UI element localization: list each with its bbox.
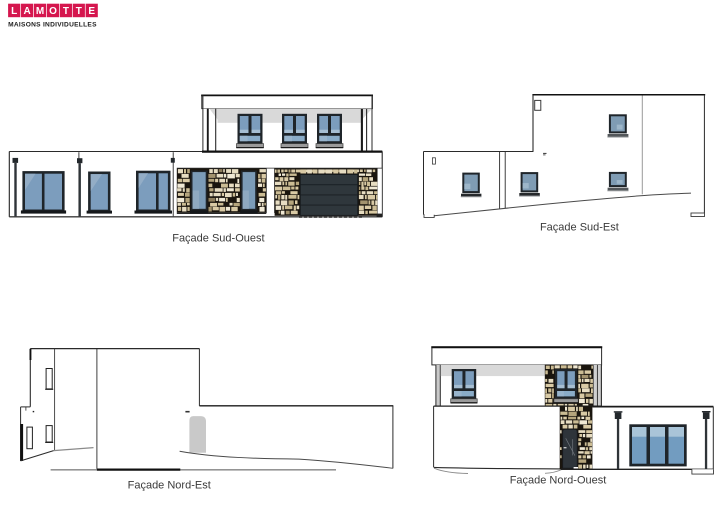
svg-text:E: E	[88, 6, 95, 17]
svg-text:Façade Sud-Est: Façade Sud-Est	[540, 221, 619, 233]
svg-text:L: L	[11, 6, 17, 17]
svg-text:Façade Nord-Ouest: Façade Nord-Ouest	[510, 474, 607, 486]
svg-text:Façade Sud-Ouest: Façade Sud-Ouest	[172, 232, 264, 244]
svg-text:M: M	[36, 6, 44, 17]
svg-text:Façade Nord-Est: Façade Nord-Est	[128, 479, 211, 491]
svg-text:T: T	[63, 6, 69, 17]
svg-text:O: O	[49, 6, 57, 17]
svg-text:A: A	[24, 6, 31, 17]
svg-text:T: T	[76, 6, 82, 17]
svg-text:MAISONS INDIVIDUELLES: MAISONS INDIVIDUELLES	[8, 21, 97, 28]
